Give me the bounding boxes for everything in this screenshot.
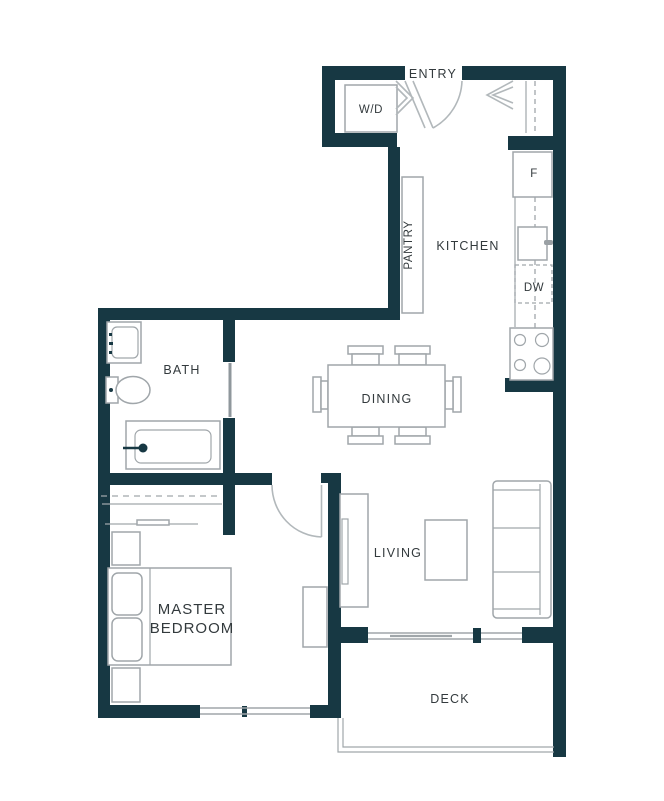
- deck-railing: [338, 718, 554, 752]
- pillow: [112, 573, 142, 615]
- entry-door-leaf: [405, 81, 425, 128]
- closet-door-handle: [137, 520, 169, 525]
- nightstand: [112, 668, 140, 702]
- sofa: [493, 481, 551, 618]
- master-bedroom-label: BEDROOM: [150, 620, 235, 637]
- wall-segment: [310, 705, 341, 718]
- dining-chair: [352, 354, 379, 365]
- wall-segment: [98, 308, 400, 320]
- wall-segment: [553, 66, 566, 757]
- coffee-table: [425, 520, 467, 580]
- living-label: LIVING: [374, 546, 422, 560]
- kitchen-fixtures: [345, 85, 553, 380]
- tv-console: [340, 494, 368, 607]
- entry-door-leaf: [413, 81, 433, 128]
- kitchen-label: KITCHEN: [436, 239, 499, 253]
- dining-chair: [399, 427, 426, 436]
- entry-label: ENTRY: [409, 67, 457, 81]
- toilet-flusher: [109, 388, 113, 392]
- wall-segment: [98, 473, 272, 485]
- wall-segment: [322, 133, 397, 147]
- dining-chair: [313, 377, 321, 412]
- wall-segment: [223, 418, 235, 473]
- tub-faucet: [139, 444, 148, 453]
- dining-chair: [352, 427, 379, 436]
- nightstand: [112, 532, 140, 565]
- dining-chair: [348, 436, 383, 444]
- entry-door-swing: [433, 81, 462, 128]
- floor-plan: ENTRY W/D F PANTRY KITCHEN DW BATH DININ…: [0, 0, 664, 801]
- kitchen-faucet: [544, 240, 553, 245]
- dining-chair: [399, 354, 426, 365]
- deck-label: DECK: [430, 692, 470, 706]
- deck-railing-inner: [343, 718, 554, 747]
- dining-chair: [395, 346, 430, 354]
- wall-segment: [462, 66, 566, 80]
- window-mullion: [473, 628, 481, 643]
- dining-chair: [453, 377, 461, 412]
- master-bedroom-label: MASTER: [158, 601, 227, 618]
- dresser: [303, 587, 327, 647]
- dining-chair: [321, 381, 328, 409]
- washer-dryer-label: W/D: [359, 104, 383, 116]
- pillow: [112, 618, 142, 661]
- dining-chair: [348, 346, 383, 354]
- wall-segment: [328, 473, 341, 718]
- floor-plan-drawing: ENTRY W/D F PANTRY KITCHEN DW BATH DININ…: [0, 0, 664, 801]
- bath-label: BATH: [163, 363, 200, 377]
- living-furniture: [340, 481, 551, 618]
- dining-chair: [395, 436, 430, 444]
- wall-segment: [98, 705, 200, 718]
- wall-segment: [388, 147, 400, 320]
- faucet-dot: [109, 342, 113, 345]
- faucet-dot: [109, 351, 112, 354]
- bathroom-fixtures: [106, 322, 220, 469]
- wall-segment: [223, 485, 235, 535]
- pantry-label: PANTRY: [403, 220, 415, 269]
- wall-segment: [508, 136, 553, 150]
- wall-segment: [341, 627, 368, 643]
- wall-segment: [223, 320, 235, 362]
- dishwasher-label: DW: [524, 282, 544, 294]
- fridge-label: F: [530, 168, 538, 180]
- bedroom-door-swing: [272, 485, 322, 537]
- dining-chair: [445, 381, 453, 409]
- bifold-door-icon: [396, 81, 413, 115]
- faucet-dot: [109, 333, 112, 336]
- windows: [200, 633, 522, 714]
- kitchen-sink: [518, 227, 547, 260]
- toilet-bowl: [116, 377, 150, 404]
- wall-segment: [522, 627, 553, 643]
- dining-label: DINING: [362, 392, 413, 406]
